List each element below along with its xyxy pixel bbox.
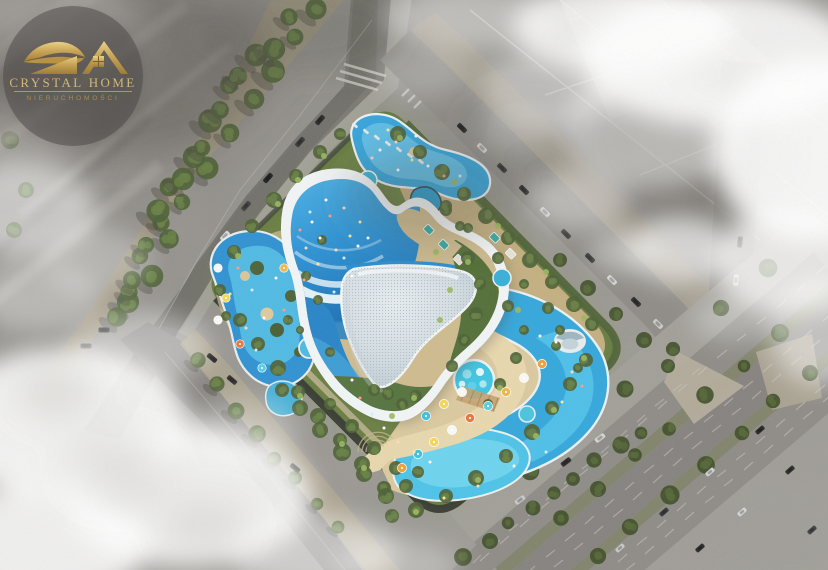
svg-text:NIERUCHOMOŚCI: NIERUCHOMOŚCI xyxy=(26,93,119,102)
svg-text:CRYSTAL HOME: CRYSTAL HOME xyxy=(9,75,136,90)
